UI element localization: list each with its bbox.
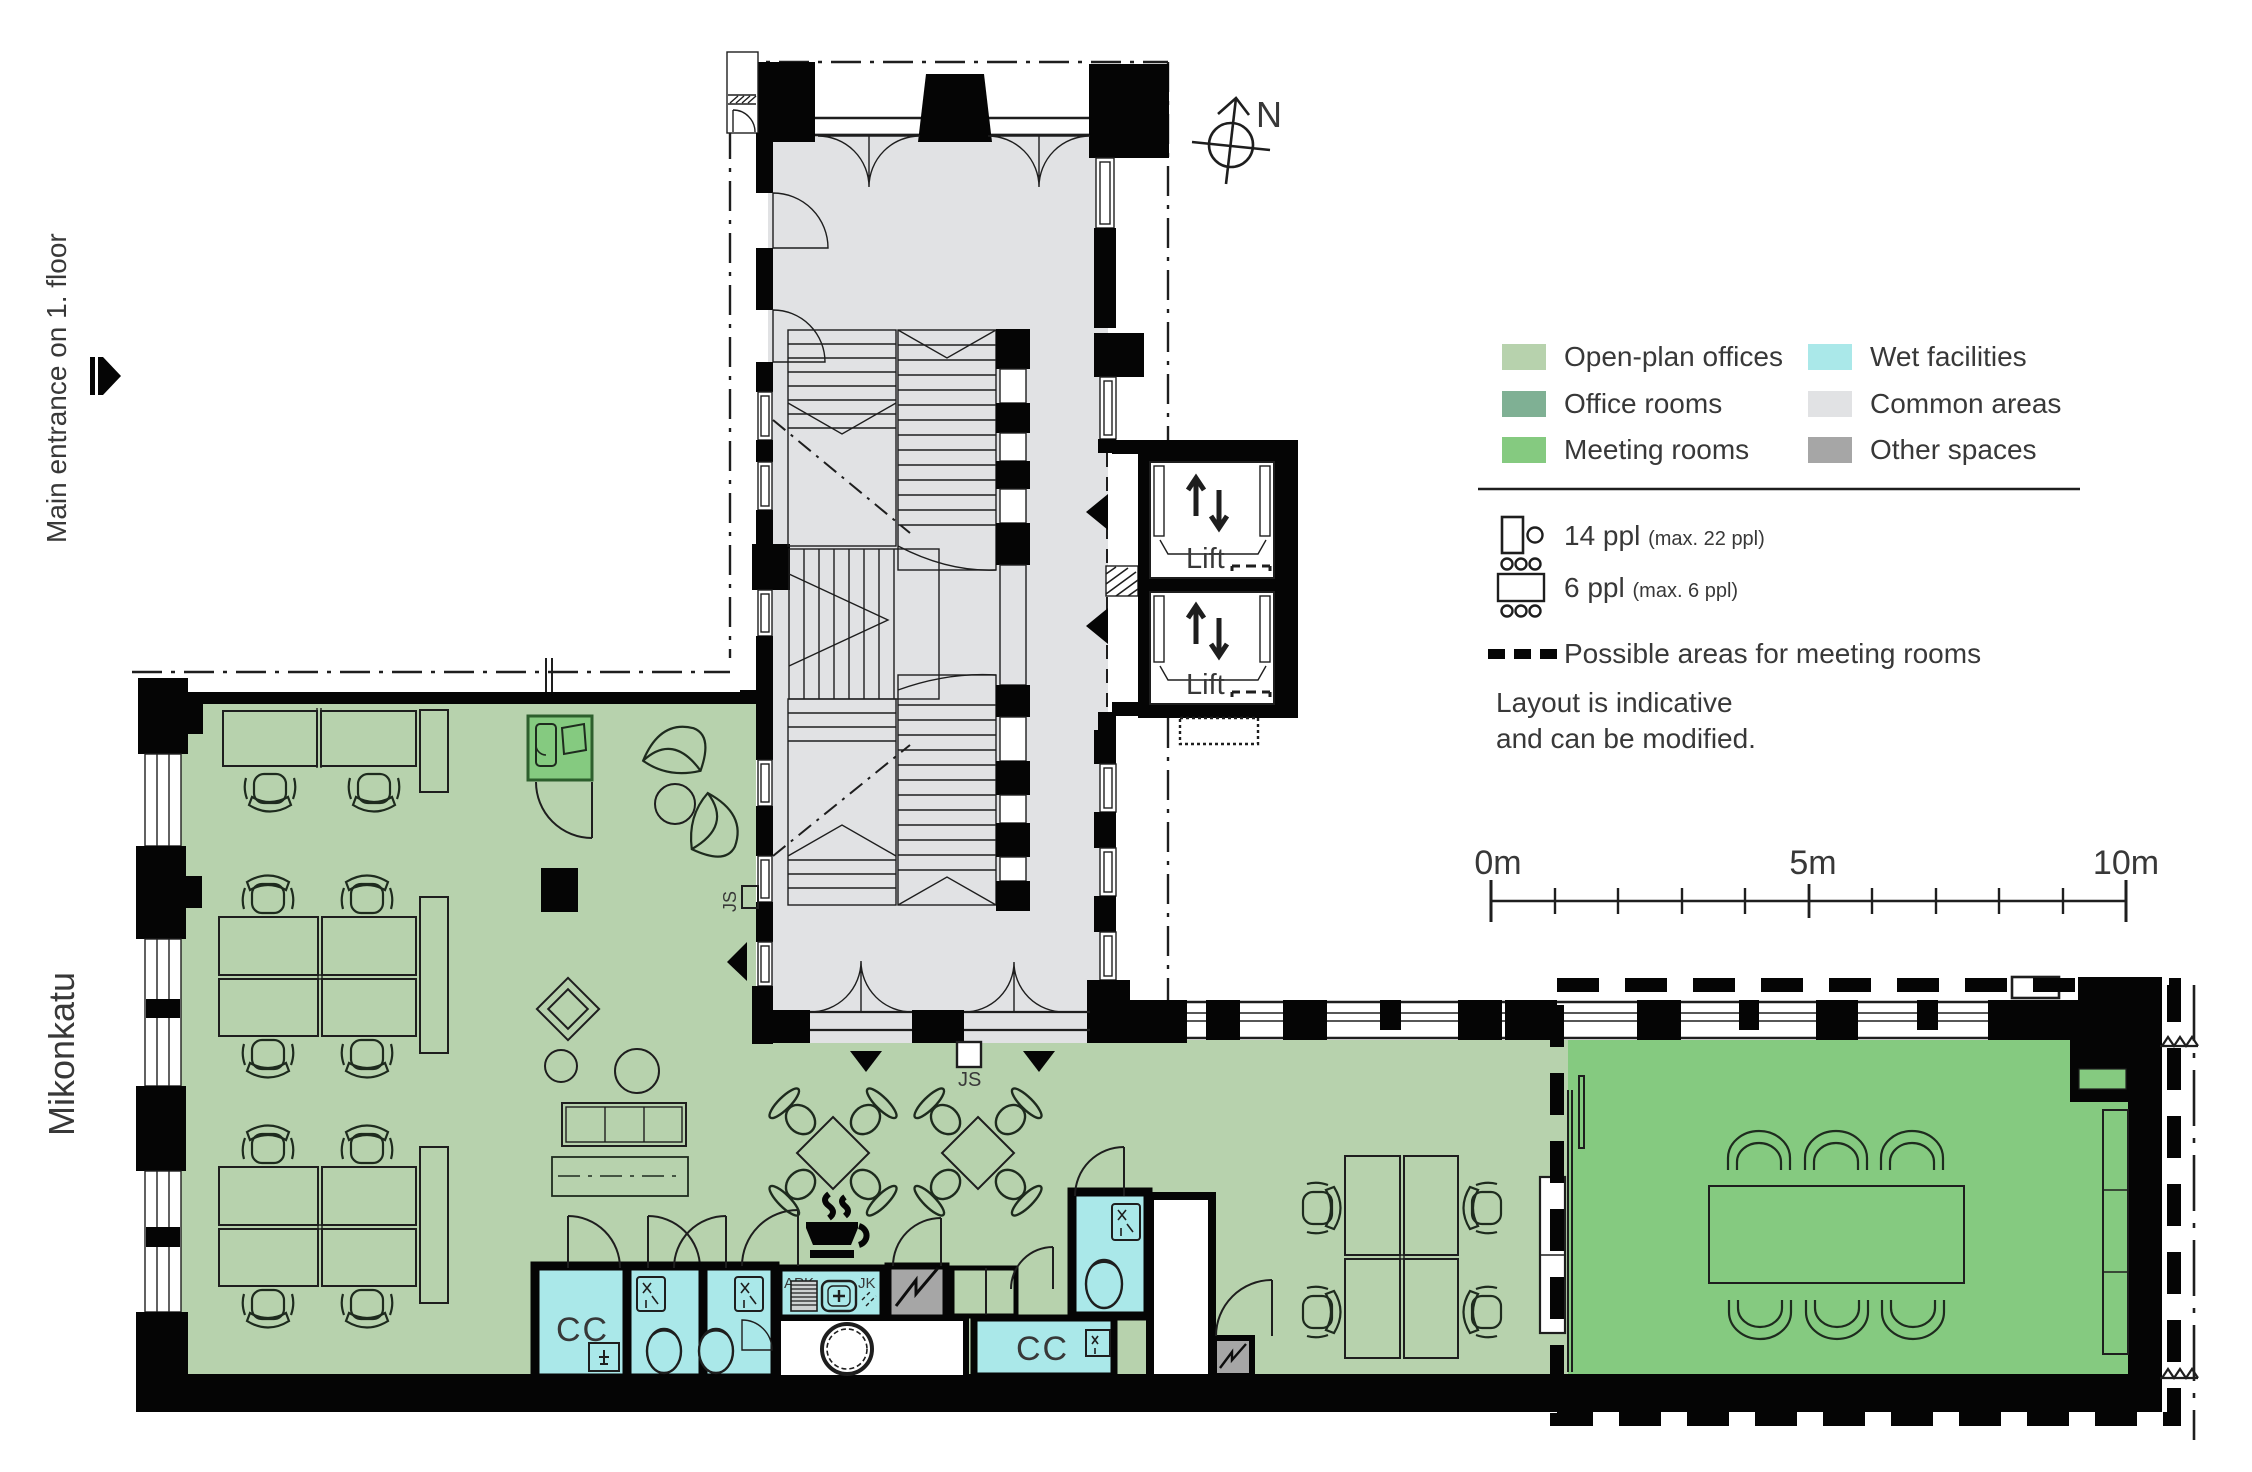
- svg-text:JS: JS: [958, 1069, 981, 1091]
- svg-text:Other spaces: Other spaces: [1870, 434, 2037, 465]
- svg-text:Common areas: Common areas: [1870, 388, 2061, 419]
- svg-text:Wet facilities: Wet facilities: [1870, 341, 2027, 372]
- svg-text:Lift: Lift: [1186, 543, 1225, 575]
- svg-text:and can be modified.: and can be modified.: [1496, 723, 1756, 754]
- svg-text:Meeting rooms: Meeting rooms: [1564, 434, 1749, 465]
- svg-text:Office rooms: Office rooms: [1564, 388, 1722, 419]
- svg-text:Open-plan offices: Open-plan offices: [1564, 341, 1783, 372]
- svg-text:10m: 10m: [2093, 844, 2159, 882]
- svg-text:Possible areas for meeting roo: Possible areas for meeting rooms: [1564, 638, 1981, 669]
- svg-text:Main entrance on 1. floor: Main entrance on 1. floor: [41, 233, 72, 543]
- svg-text:Layout is indicative: Layout is indicative: [1496, 687, 1733, 718]
- svg-text:CC: CC: [1016, 1330, 1069, 1368]
- svg-text:Lift: Lift: [1186, 669, 1225, 701]
- svg-text:JK: JK: [858, 1275, 876, 1292]
- svg-text:Mikonkatu: Mikonkatu: [41, 972, 82, 1136]
- svg-text:N: N: [1256, 94, 1282, 135]
- svg-text:0m: 0m: [1474, 844, 1521, 882]
- svg-text:JS: JS: [720, 891, 740, 912]
- svg-text:5m: 5m: [1789, 844, 1836, 882]
